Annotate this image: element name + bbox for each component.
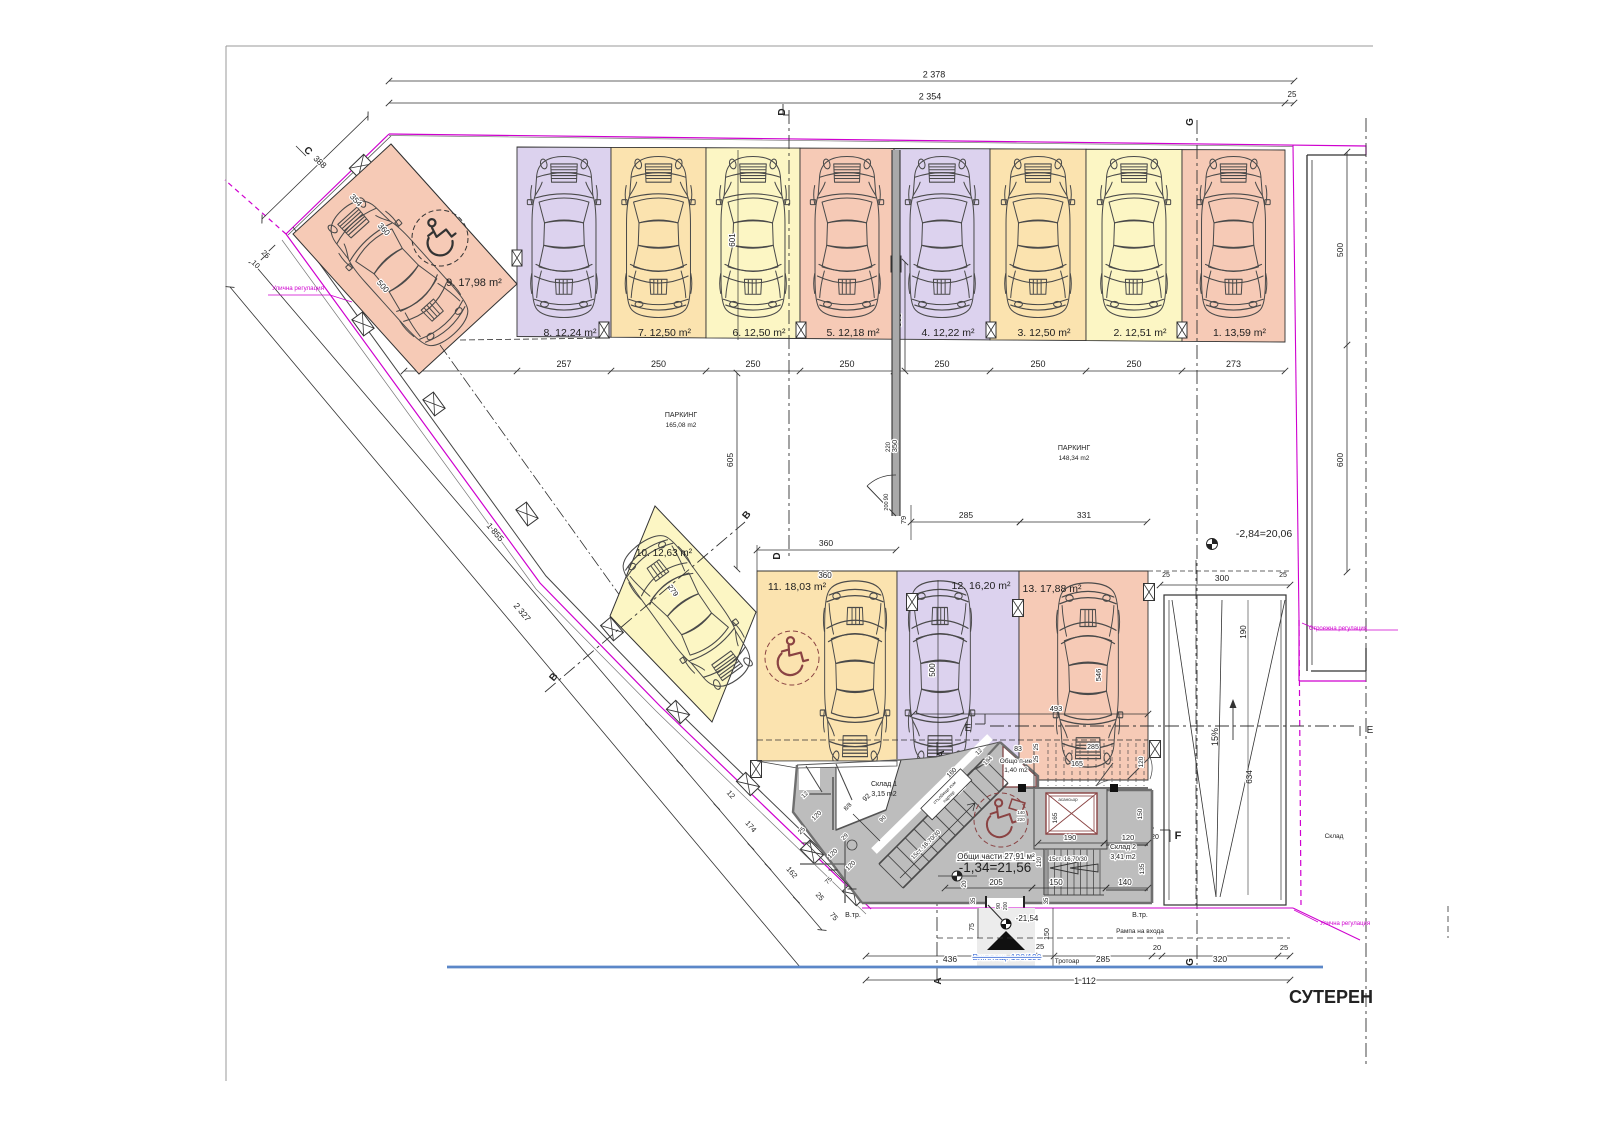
- svg-text:E: E: [965, 723, 972, 734]
- svg-text:15ст. 16,70/30: 15ст. 16,70/30: [1049, 857, 1088, 863]
- svg-text:7. 12,50 m²: 7. 12,50 m²: [638, 327, 692, 339]
- svg-text:25: 25: [1034, 755, 1040, 762]
- svg-text:605: 605: [725, 453, 735, 467]
- svg-text:220: 220: [1017, 817, 1025, 822]
- svg-text:120: 120: [1138, 756, 1145, 767]
- svg-text:Склад 1: Склад 1: [871, 781, 897, 788]
- svg-text:Строежна регулация: Строежна регулация: [1309, 626, 1367, 632]
- svg-text:165: 165: [1052, 812, 1059, 823]
- svg-text:285: 285: [1096, 954, 1110, 964]
- svg-text:250: 250: [1126, 359, 1141, 369]
- svg-text:500: 500: [1335, 243, 1345, 257]
- svg-text:140: 140: [1118, 878, 1132, 887]
- svg-text:90: 90: [884, 493, 890, 500]
- svg-text:250: 250: [745, 359, 760, 369]
- svg-text:25: 25: [1036, 942, 1044, 951]
- svg-text:11. 18,03 m²: 11. 18,03 m²: [768, 581, 827, 593]
- svg-text:Улична регулация: Улична регулация: [1320, 921, 1370, 927]
- svg-text:320: 320: [1213, 954, 1227, 964]
- svg-text:360: 360: [819, 538, 833, 548]
- svg-text:135: 135: [1139, 863, 1146, 874]
- svg-text:250: 250: [934, 359, 949, 369]
- svg-text:83: 83: [1014, 746, 1022, 753]
- svg-text:205: 205: [989, 878, 1003, 887]
- svg-text:546: 546: [1094, 669, 1103, 682]
- svg-text:E: E: [1367, 725, 1374, 736]
- svg-text:200: 200: [884, 501, 890, 510]
- svg-text:300: 300: [1215, 573, 1229, 583]
- svg-text:15%: 15%: [1210, 728, 1220, 746]
- svg-text:165,08 m2: 165,08 m2: [666, 422, 697, 429]
- svg-text:148,34 m2: 148,34 m2: [1059, 455, 1090, 462]
- svg-text:Рампа на входа: Рампа на входа: [1116, 928, 1164, 935]
- svg-text:D: D: [777, 108, 788, 115]
- svg-text:10. 12,63 m²: 10. 12,63 m²: [636, 548, 693, 559]
- svg-text:150: 150: [1137, 808, 1144, 819]
- svg-text:1,40 m2: 1,40 m2: [1004, 767, 1028, 774]
- svg-text:436: 436: [943, 954, 957, 964]
- svg-text:1. 13,59 m²: 1. 13,59 m²: [1213, 327, 1267, 339]
- svg-text:200: 200: [1003, 902, 1009, 911]
- svg-text:Общо п-ие: Общо п-ие: [1000, 757, 1033, 765]
- svg-text:190: 190: [1064, 833, 1077, 842]
- svg-text:13. 17,88 m²: 13. 17,88 m²: [1023, 583, 1082, 595]
- svg-text:2 354: 2 354: [919, 92, 942, 102]
- svg-text:3. 12,50 m²: 3. 12,50 m²: [1017, 327, 1071, 339]
- svg-text:140: 140: [1017, 810, 1025, 815]
- svg-text:ПАРКИНГ: ПАРКИНГ: [1058, 445, 1091, 452]
- svg-text:285: 285: [1087, 744, 1099, 751]
- svg-text:4. 12,22 m²: 4. 12,22 m²: [921, 327, 975, 339]
- svg-text:6. 12,50 m²: 6. 12,50 m²: [732, 327, 786, 339]
- svg-text:285: 285: [959, 510, 973, 520]
- svg-text:120: 120: [1122, 833, 1135, 842]
- svg-text:35: 35: [971, 897, 977, 904]
- svg-text:12. 16,20 m²: 12. 16,20 m²: [952, 580, 1011, 592]
- svg-text:3,15 m2: 3,15 m2: [871, 791, 896, 798]
- svg-text:1 112: 1 112: [1074, 976, 1096, 986]
- svg-text:25: 25: [1034, 743, 1040, 750]
- svg-text:35: 35: [1044, 897, 1050, 904]
- svg-text:В.тр.: В.тр.: [845, 912, 861, 919]
- svg-text:Склад 2: Склад 2: [1110, 844, 1136, 851]
- svg-text:G: G: [1185, 958, 1196, 966]
- svg-text:2 378: 2 378: [923, 70, 946, 80]
- svg-text:634: 634: [1245, 770, 1254, 784]
- svg-text:250: 250: [839, 359, 854, 369]
- svg-text:257: 257: [556, 359, 571, 369]
- svg-text:75: 75: [969, 923, 976, 931]
- svg-text:-21,54: -21,54: [1016, 914, 1039, 923]
- svg-text:250: 250: [1030, 359, 1045, 369]
- svg-text:500: 500: [928, 663, 937, 677]
- svg-text:250: 250: [651, 359, 666, 369]
- svg-text:120: 120: [1037, 856, 1043, 867]
- svg-text:ПАРКИНГ: ПАРКИНГ: [665, 412, 698, 419]
- svg-text:Улична регулация: Улична регулация: [272, 285, 324, 292]
- svg-text:СУТЕРЕН: СУТЕРЕН: [1289, 987, 1373, 1007]
- svg-text:273: 273: [1226, 359, 1241, 369]
- svg-text:G: G: [1185, 118, 1196, 126]
- svg-text:В.тр.: В.тр.: [1132, 912, 1148, 919]
- svg-text:150: 150: [1049, 878, 1063, 887]
- svg-text:165: 165: [1071, 761, 1083, 768]
- svg-text:360: 360: [818, 571, 832, 580]
- svg-text:Тротоар: Тротоар: [1055, 958, 1080, 965]
- svg-text:350: 350: [890, 440, 899, 453]
- svg-text:-2,84=20,06: -2,84=20,06: [1236, 528, 1293, 540]
- svg-text:493: 493: [1050, 704, 1063, 713]
- svg-text:Склад: Склад: [1325, 833, 1344, 840]
- svg-text:5. 12,18 m²: 5. 12,18 m²: [826, 327, 880, 339]
- svg-text:2. 12,51 m²: 2. 12,51 m²: [1113, 327, 1167, 339]
- svg-text:331: 331: [1077, 510, 1091, 520]
- svg-text:190: 190: [1239, 625, 1248, 639]
- svg-text:600: 600: [1335, 453, 1345, 467]
- svg-text:25: 25: [1279, 572, 1287, 579]
- svg-text:9. 17,98 m²: 9. 17,98 m²: [446, 277, 502, 289]
- svg-text:20: 20: [961, 880, 968, 888]
- svg-text:A: A: [933, 977, 944, 984]
- svg-text:25: 25: [1280, 943, 1288, 952]
- svg-text:D: D: [772, 552, 783, 559]
- svg-text:F: F: [1175, 830, 1182, 842]
- svg-text:25: 25: [1162, 572, 1170, 579]
- svg-text:асансьор: асансьор: [1058, 797, 1078, 802]
- svg-text:20: 20: [1153, 943, 1161, 952]
- svg-text:3,41 m2: 3,41 m2: [1110, 854, 1135, 861]
- svg-text:601: 601: [728, 233, 737, 247]
- svg-text:Вх.площ. 180/190: Вх.площ. 180/190: [972, 952, 1041, 962]
- svg-text:-1,34=21,56: -1,34=21,56: [959, 860, 1031, 875]
- svg-text:79: 79: [899, 516, 908, 524]
- svg-text:25: 25: [1288, 90, 1297, 99]
- svg-text:8. 12,24 m²: 8. 12,24 m²: [543, 327, 597, 339]
- svg-text:90: 90: [996, 903, 1002, 909]
